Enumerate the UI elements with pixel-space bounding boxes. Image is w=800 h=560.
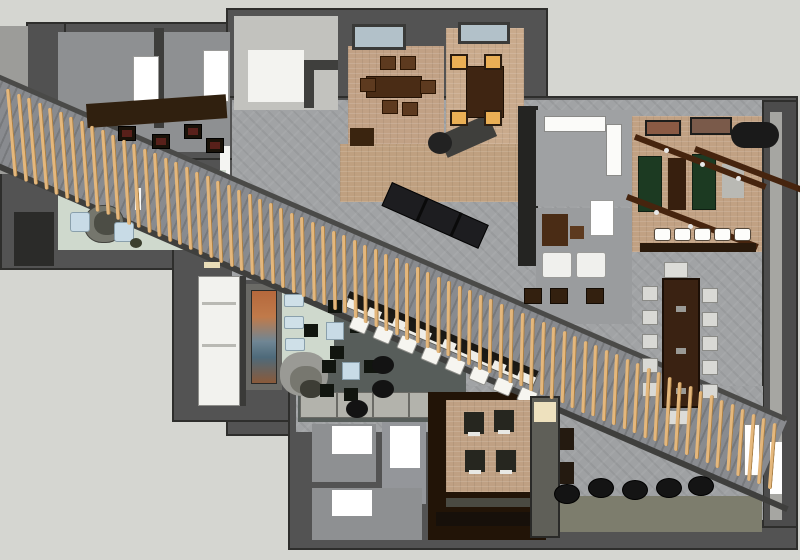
lounge-pouf-1 [372, 356, 394, 374]
timber-slat-32 [332, 231, 337, 310]
lounge-table-2 [342, 362, 360, 380]
reception-plant [130, 238, 142, 248]
communal-head-chair [664, 262, 688, 278]
lounge-table-1 [326, 322, 344, 340]
cream-door-latch [204, 262, 220, 268]
communal-chair-right-2 [702, 312, 718, 327]
dining-a-chair-2 [400, 56, 416, 70]
office-desk [542, 214, 568, 246]
corridor-door-line-1 [202, 302, 236, 305]
timber-slat-46 [477, 295, 482, 370]
tatami-platform [446, 400, 534, 492]
communal-chair-right-1 [702, 288, 718, 303]
skylight-a [352, 24, 406, 50]
restroom-1-panel [332, 426, 372, 454]
timber-slat-37 [384, 254, 388, 331]
entry-table-cushion-2 [156, 138, 166, 145]
terrace-pouf-2 [588, 478, 614, 498]
banquet-bar-stool-1 [654, 228, 671, 241]
timber-slat-36 [374, 249, 378, 327]
kitchen-wall-dark [518, 106, 538, 266]
banquet-bar-counter [640, 243, 756, 252]
lounge-chair-5 [322, 360, 336, 373]
lounge-chair-4 [330, 346, 344, 359]
service-corridor-floor [340, 144, 526, 202]
banquet-picture-2 [690, 117, 732, 135]
tatami-seat-4 [496, 450, 516, 472]
beam-light-dot-2 [700, 162, 705, 167]
column-side-table-2 [560, 462, 574, 484]
office-white-panel [590, 200, 614, 236]
banquet-bar-stool-2 [674, 228, 691, 241]
dining-a-chair-5 [382, 100, 398, 114]
timber-slat-44 [457, 286, 461, 361]
skylight-b [458, 22, 510, 44]
storage-l-wall-b [304, 60, 314, 108]
timber-slat-38 [395, 258, 399, 335]
tatami-seat-slot-3 [469, 470, 481, 474]
storage-room-white-patch [248, 50, 304, 102]
office-wall-stool-1 [524, 288, 542, 304]
beam-light-dot-4 [654, 210, 659, 215]
terrace-pouf-3 [622, 480, 648, 500]
timber-slat-43 [446, 281, 450, 356]
communal-chair-left-2 [642, 310, 658, 325]
entry-table-cushion-4 [210, 142, 220, 149]
banquet-cylinder-lamp [731, 122, 779, 148]
locker-divider-1 [336, 392, 338, 418]
round-stool [428, 132, 452, 154]
dining-a-chair-4 [420, 80, 436, 94]
locker-divider-2 [372, 392, 374, 418]
tatami-seat-1 [464, 412, 484, 434]
dining-b-amber-chair-1 [450, 54, 468, 70]
beam-light-dot-1 [664, 148, 669, 153]
timber-slat-34 [353, 240, 357, 318]
timber-slat-41 [426, 272, 430, 348]
left-doorway [14, 212, 54, 266]
office-wall-stool-2 [550, 288, 568, 304]
lounge-chair-3 [304, 324, 318, 337]
kitchen-counter-side [606, 124, 622, 176]
dining-a-chair-1 [380, 56, 396, 70]
terrace-pouf-5 [688, 476, 714, 496]
partition-cream-top [534, 402, 556, 422]
lounge-pouf-3 [346, 400, 368, 418]
corridor-floor [198, 276, 240, 406]
dining-a-chair-6 [402, 102, 418, 116]
banquet-bar-stool-5 [734, 228, 751, 241]
artwork-painting [251, 290, 277, 384]
lounge-wall-bench-2 [284, 316, 304, 329]
banquet-picture-1 [645, 120, 681, 136]
timber-slat-39 [405, 263, 409, 340]
office-chair [570, 226, 584, 239]
tatami-seat-3 [465, 450, 485, 472]
communal-chair-left-1 [642, 286, 658, 301]
tatami-seat-2 [494, 410, 514, 432]
dining-b-amber-chair-2 [484, 54, 502, 70]
entry-table-cushion-3 [188, 128, 198, 135]
corridor-door-line-2 [202, 344, 236, 347]
communal-chair-right-4 [702, 360, 718, 375]
dining-a-chair-3 [360, 78, 376, 92]
restroom-3-panel [332, 490, 372, 516]
floorplan-3d-viewport[interactable] [0, 0, 800, 560]
restroom-2-panel [390, 426, 420, 468]
terrace-pouf-1 [554, 484, 580, 504]
communal-table-clamp-1 [676, 306, 686, 312]
lounge-pouf-2 [372, 380, 394, 398]
reception-panel-1 [70, 212, 90, 232]
tatami-bench [446, 498, 534, 507]
tatami-shelf [436, 512, 538, 526]
office-mat-2 [576, 252, 606, 278]
terrace-olive-band [556, 496, 762, 532]
lounge-chair-8 [320, 384, 334, 397]
dining-b-amber-chair-4 [484, 110, 502, 126]
banquet-table [668, 158, 686, 210]
beam-light-dot-3 [736, 176, 741, 181]
entry-table-cushion-1 [122, 130, 132, 137]
tatami-seat-slot-4 [500, 470, 512, 474]
lounge-wall-bench-3 [285, 338, 305, 351]
communal-table-clamp-2 [676, 348, 686, 354]
dining-b-amber-chair-3 [450, 110, 468, 126]
timber-slat-48 [498, 304, 503, 378]
terrace-pouf-4 [656, 478, 682, 498]
communal-chair-right-3 [702, 336, 718, 351]
dining-a-sideboard [350, 128, 374, 146]
lounge-wall-bench-1 [284, 294, 304, 307]
banquet-bar-stool-3 [694, 228, 711, 241]
office-mat-1 [542, 252, 572, 278]
banquet-bar-stool-4 [714, 228, 731, 241]
timber-slat-42 [436, 277, 440, 353]
tatami-seat-slot-1 [468, 432, 480, 436]
stone-moss [300, 380, 322, 398]
kitchen-counter-top [544, 116, 606, 132]
column-side-table-1 [560, 428, 574, 450]
office-wall-stool-3 [586, 288, 604, 304]
timber-slat-40 [415, 267, 419, 343]
locker-divider-3 [408, 392, 410, 418]
tatami-seat-slot-2 [498, 430, 510, 434]
communal-chair-left-3 [642, 334, 658, 349]
